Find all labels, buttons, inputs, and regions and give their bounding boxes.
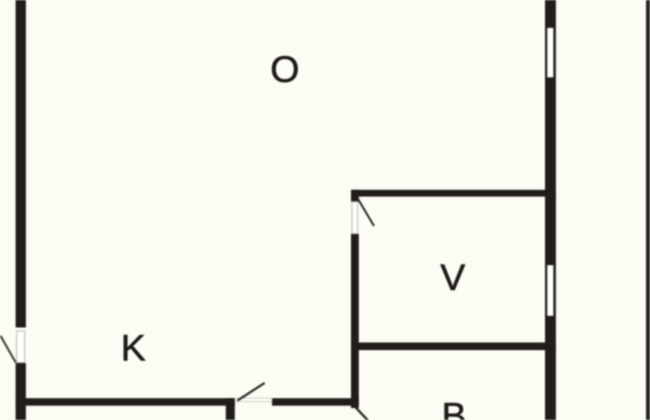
svg-text:B: B	[441, 395, 466, 420]
svg-text:O: O	[270, 48, 299, 90]
svg-text:K: K	[121, 327, 146, 369]
svg-text:V: V	[440, 256, 465, 298]
